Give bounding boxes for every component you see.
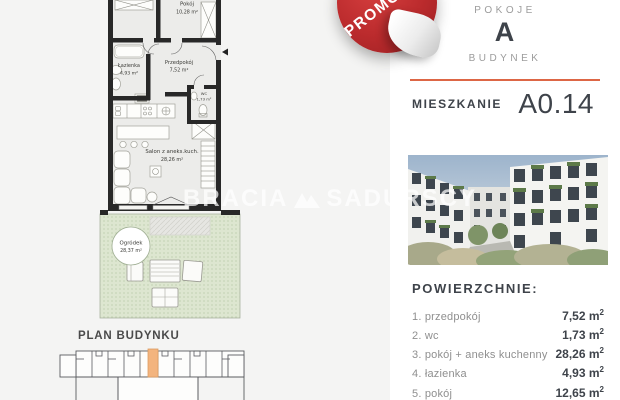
areas-heading: POWIERZCHNIE:: [412, 281, 538, 296]
room-label-ogrodek: Ogródek: [120, 240, 144, 247]
info-panel: POKOJE A BUDYNEK MIESZKANIE A0.14: [390, 0, 620, 400]
room-area-wc: 1,73 m²: [197, 97, 212, 102]
room-area-ogrodek: 28,37 m²: [120, 248, 142, 254]
building-plan: [58, 347, 250, 400]
room-label-salon: Salon z aneks.kuch.: [145, 149, 199, 155]
room-label-przedpokoj: Przedpokój: [165, 59, 193, 66]
entrance-arrow-icon: [222, 49, 228, 56]
listing-card[interactable]: Ogródek 28,37 m²: [0, 0, 620, 400]
accent-divider: [410, 79, 600, 81]
floor-plan: Ogródek 28,37 m²: [95, 0, 245, 325]
brand-logo-icon: [294, 191, 320, 208]
area-value: 12,65 m2: [556, 385, 605, 400]
area-row-pokoj-aneks: 3. pokój + aneks kuchenny 28,26 m2: [412, 346, 604, 361]
building-photo: [408, 155, 608, 265]
area-row-wc: 2. wc 1,73 m2: [412, 327, 604, 342]
area-name: 4. łazienka: [412, 368, 467, 380]
area-row-lazienka: 4. łazienka 4,93 m2: [412, 365, 604, 380]
apartment-row: MIESZKANIE A0.14: [412, 88, 594, 120]
area-value: 7,52 m2: [562, 308, 604, 323]
area-name: 2. wc: [412, 330, 439, 342]
area-row-pokoj: 5. pokój 12,65 m2: [412, 385, 604, 400]
room-area-przedpokoj: 7,52 m²: [170, 68, 189, 74]
garden-area: Ogródek 28,37 m²: [100, 214, 240, 318]
area-value: 1,73 m2: [562, 327, 604, 342]
room-label-wc: WC: [201, 91, 208, 96]
room-area-lazienka: 4,93 m²: [120, 71, 138, 77]
area-value: 4,93 m2: [562, 365, 604, 380]
room-label-lazienka: Łazienka: [117, 63, 140, 69]
area-row-przedpokoj: 1. przedpokój 7,52 m2: [412, 308, 604, 323]
promo-badge: PROMOCJA: [337, 0, 437, 53]
highlighted-unit: [148, 349, 158, 377]
room-area-pokoj: 10,28 m²: [176, 10, 198, 16]
apartment-number: A0.14: [518, 88, 594, 120]
room-label-pokoj: Pokój: [180, 1, 194, 8]
apartment-label: MIESZKANIE: [412, 97, 502, 111]
area-name: 3. pokój + aneks kuchenny: [412, 349, 548, 361]
building-plan-title: PLAN BUDYNKU: [78, 330, 180, 342]
area-name: 1. przedpokój: [412, 311, 481, 323]
area-name: 5. pokój: [412, 388, 452, 400]
room-area-salon: 28,26 m²: [161, 157, 183, 163]
area-value: 28,26 m2: [556, 346, 605, 361]
